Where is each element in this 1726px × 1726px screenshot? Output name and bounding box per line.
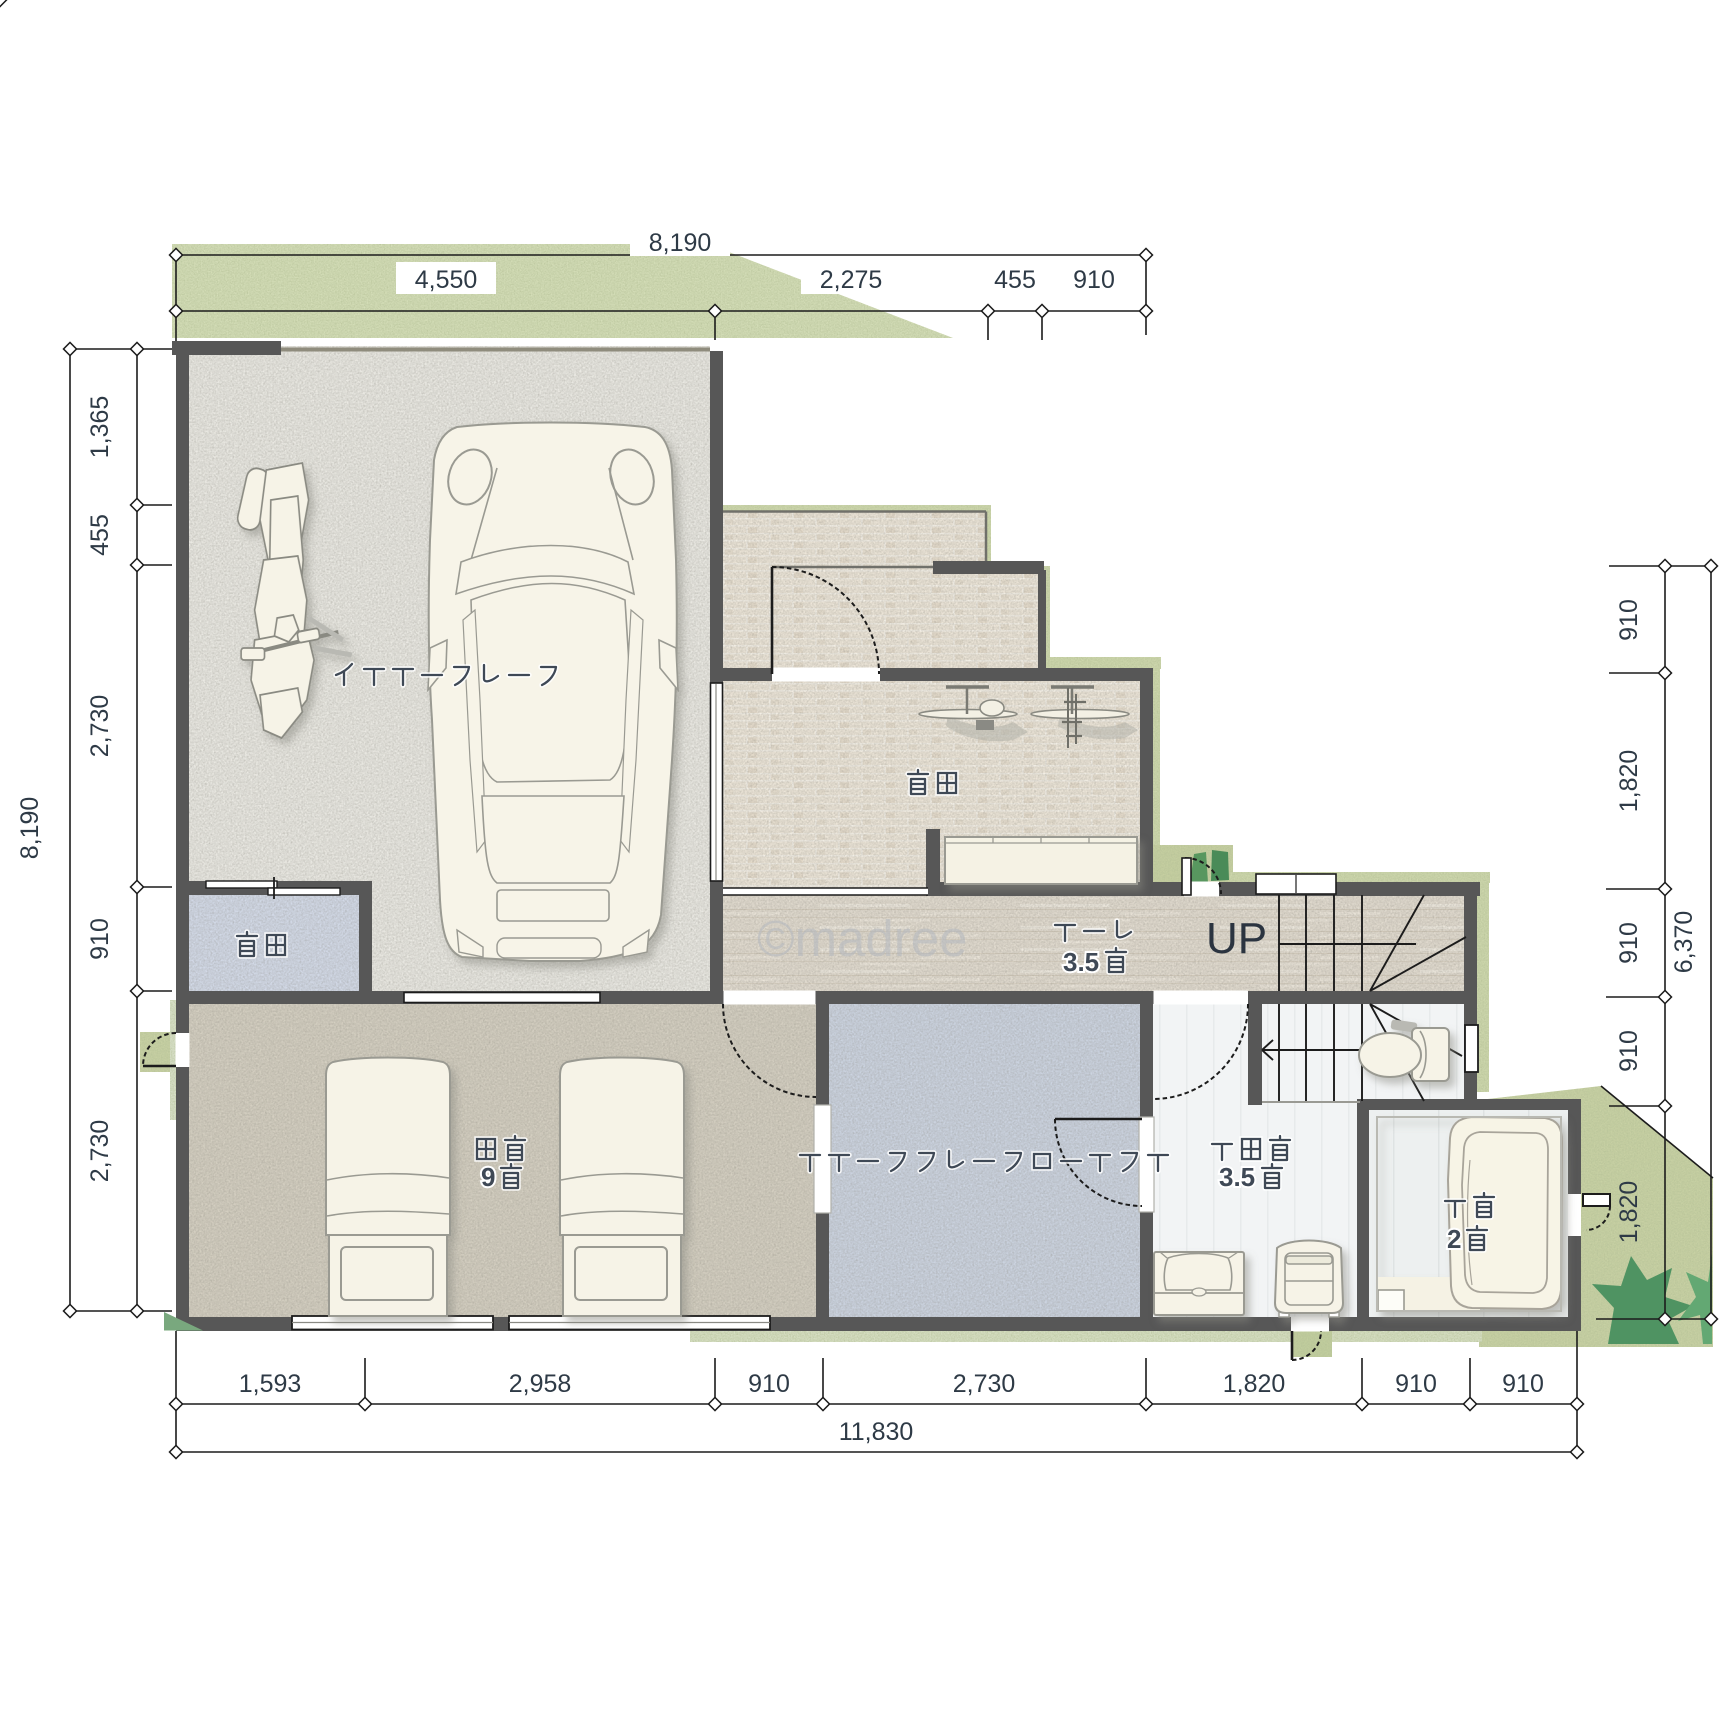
- svg-text:910: 910: [1395, 1370, 1437, 1398]
- svg-text:3.5: 3.5: [1063, 947, 1099, 977]
- svg-text:910: 910: [86, 918, 114, 960]
- svg-text:455: 455: [86, 514, 114, 556]
- svg-text:2: 2: [1447, 1224, 1461, 1254]
- svg-text:910: 910: [1502, 1370, 1544, 1398]
- svg-text:455: 455: [994, 266, 1036, 294]
- svg-text:1,593: 1,593: [239, 1370, 302, 1398]
- svg-text:1,820: 1,820: [1615, 1181, 1643, 1244]
- svg-text:1,820: 1,820: [1615, 750, 1643, 813]
- svg-text:8,190: 8,190: [649, 229, 712, 257]
- svg-text:1,820: 1,820: [1223, 1370, 1286, 1398]
- svg-text:2,275: 2,275: [820, 266, 883, 294]
- svg-text:2,730: 2,730: [953, 1370, 1016, 1398]
- svg-text:3.5: 3.5: [1219, 1162, 1255, 1192]
- svg-text:2,730: 2,730: [86, 695, 114, 758]
- svg-text:4,550: 4,550: [415, 266, 478, 294]
- svg-text:9: 9: [481, 1162, 495, 1192]
- svg-text:8,190: 8,190: [16, 797, 44, 860]
- svg-text:910: 910: [1615, 599, 1643, 641]
- svg-text:2,730: 2,730: [86, 1120, 114, 1183]
- svg-text:910: 910: [1615, 1030, 1643, 1072]
- svg-text:6,370: 6,370: [1670, 911, 1698, 974]
- svg-text:910: 910: [748, 1370, 790, 1398]
- svg-text:1,365: 1,365: [86, 396, 114, 459]
- svg-text:©madree: ©madree: [757, 910, 968, 967]
- svg-text:910: 910: [1073, 266, 1115, 294]
- svg-text:910: 910: [1615, 922, 1643, 964]
- svg-text:UP: UP: [1206, 914, 1267, 963]
- svg-text:2,958: 2,958: [509, 1370, 572, 1398]
- svg-text:11,830: 11,830: [839, 1418, 914, 1446]
